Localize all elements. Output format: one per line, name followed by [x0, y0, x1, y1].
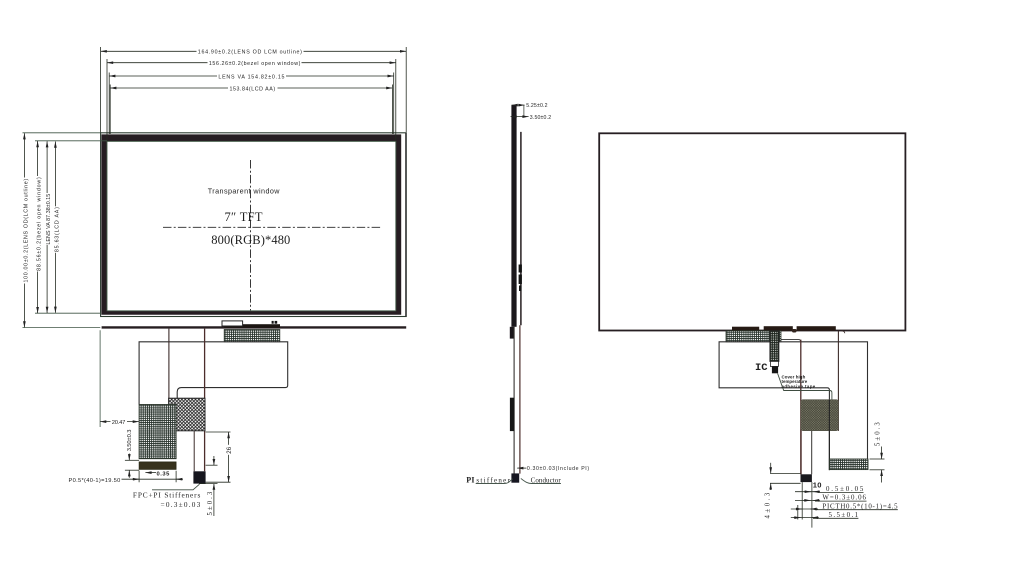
- svg-text:800(RGB)*480: 800(RGB)*480: [211, 233, 290, 247]
- svg-text:P0.5*(40-1)=19.50: P0.5*(40-1)=19.50: [69, 478, 121, 484]
- svg-text:LENS VA 154.82±0.15: LENS VA 154.82±0.15: [218, 74, 284, 80]
- svg-text:88.56±0.2(bezel open window): 88.56±0.2(bezel open window): [37, 177, 43, 271]
- svg-text:PICTH0.5*(10-1)=4.5: PICTH0.5*(10-1)=4.5: [822, 503, 898, 510]
- svg-text:W=0.3±0.06: W=0.3±0.06: [822, 495, 866, 502]
- svg-text:PI: PI: [466, 475, 474, 484]
- svg-text:5.5±0.1: 5.5±0.1: [829, 512, 859, 519]
- svg-text:5.25±0.2: 5.25±0.2: [526, 103, 548, 109]
- svg-text:adhesive tape: adhesive tape: [782, 384, 816, 389]
- svg-text:153.84(LCD AA): 153.84(LCD AA): [230, 86, 276, 92]
- svg-text:IC: IC: [755, 362, 768, 374]
- svg-text:Transparent window: Transparent window: [208, 187, 281, 196]
- svg-text:10: 10: [813, 481, 822, 490]
- svg-text:3.50±0.2: 3.50±0.2: [530, 115, 552, 121]
- svg-text:100.00±0.2(LENS OD(LCM outline: 100.00±0.2(LENS OD(LCM outline): [23, 179, 29, 283]
- svg-text:FPC+PI Stiffeners: FPC+PI Stiffeners: [133, 491, 201, 500]
- svg-text:7″ TFT: 7″ TFT: [225, 210, 263, 224]
- svg-text:LENS VA 87.38±0.15: LENS VA 87.38±0.15: [46, 194, 52, 245]
- svg-text:0.5±0.05: 0.5±0.05: [826, 486, 864, 493]
- svg-text:156.26±0.2(bezel open window): 156.26±0.2(bezel open window): [209, 61, 301, 67]
- svg-text:85.63(LCD AA): 85.63(LCD AA): [54, 207, 60, 252]
- svg-text:0.35: 0.35: [157, 472, 171, 478]
- svg-text:164.90±0.2(LENS OD LCM outline: 164.90±0.2(LENS OD LCM outline): [198, 50, 302, 56]
- svg-text:26: 26: [227, 446, 233, 454]
- svg-text:=0.3±0.03: =0.3±0.03: [161, 500, 201, 509]
- svg-text:3.50±0.3: 3.50±0.3: [127, 429, 133, 451]
- svg-text:0.30±0.03(Include PI): 0.30±0.03(Include PI): [527, 466, 589, 472]
- svg-text:20.47: 20.47: [112, 420, 126, 426]
